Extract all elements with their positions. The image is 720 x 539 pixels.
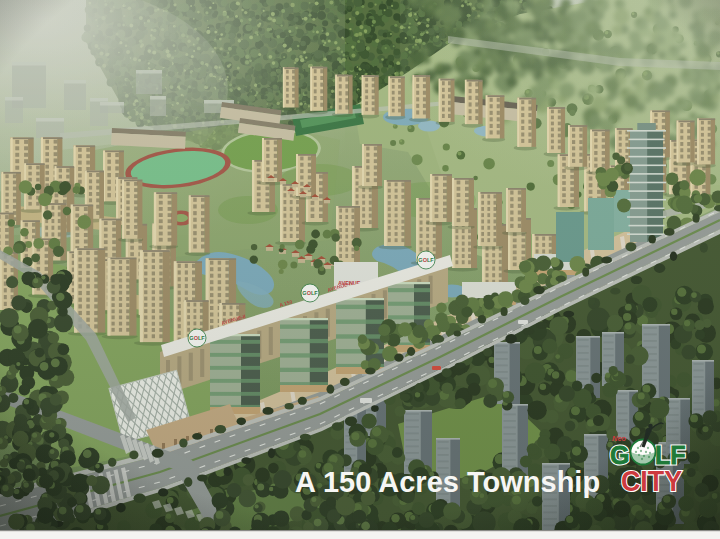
svg-text:A 150 Acres Township: A 150 Acres Township (295, 466, 600, 498)
svg-text:CITY: CITY (621, 465, 682, 497)
